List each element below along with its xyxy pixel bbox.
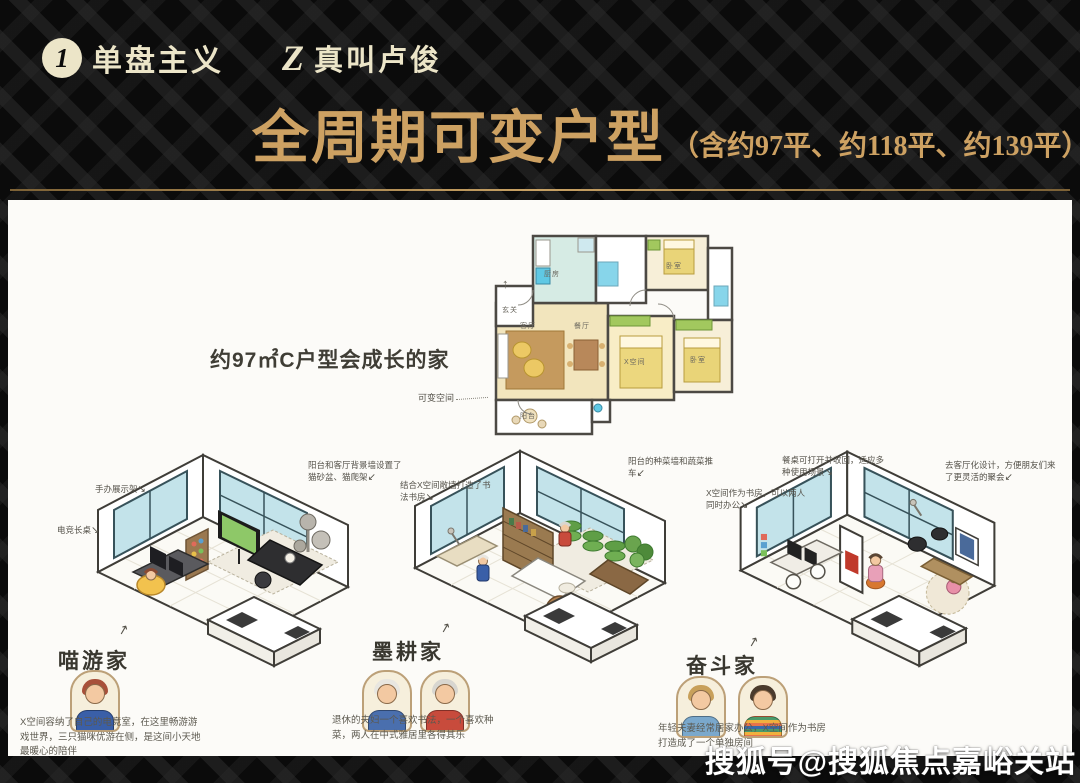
leader-arrow-icon: ↙ (637, 468, 645, 479)
leader-arrow-icon: ↘ (138, 484, 146, 495)
leader-arrow-icon: ↘ (740, 500, 748, 511)
kitchen-counter (536, 240, 550, 266)
bed-top-pillow (664, 240, 694, 249)
bathroom-fixture-2 (714, 286, 728, 306)
lujun-logo-icon: Z (282, 37, 304, 79)
bed-x-pillow (620, 336, 662, 348)
scene-name-ink-garden: 墨耕家 (372, 636, 444, 666)
utility-fixture (594, 404, 602, 412)
danpan-logo-icon: 1 (42, 38, 82, 78)
armchair-2 (524, 359, 544, 377)
armchair (513, 342, 531, 358)
label-bedroom-right: 卧室 (690, 355, 706, 364)
floorplan-caption: 约97㎡C户型会成长的家 (210, 344, 450, 374)
label-kitchen: 厨房 (544, 269, 560, 278)
leader-arrow-icon: ↘ (426, 492, 434, 503)
annotation-figure-shelf: 手办展示架↘ (95, 483, 165, 497)
annotation-folding-table: 餐桌可打开并收回，适应多种使用场景↘ (782, 455, 884, 480)
page-title: 全周期可变户型 (252, 108, 665, 171)
partition-wall (840, 526, 862, 593)
elderly-woman-figure (559, 523, 571, 546)
danpan-logo-text: 单盘主义 (92, 36, 224, 80)
label-balcony: 阳台 (520, 411, 536, 420)
leader-arrow-icon: ↙ (1005, 472, 1013, 483)
wardrobe-x (610, 316, 650, 326)
label-entry: 玄关 (502, 305, 518, 314)
room-balcony (496, 400, 592, 434)
brand-logos: 1 单盘主义 Z 真叫卢俊 (42, 36, 442, 80)
dining-table-plan (574, 340, 598, 370)
elderly-man-figure (477, 556, 489, 581)
annotation-esports-desk: 电竞长桌↘ (57, 524, 117, 538)
scene-description-ink-garden: 退休的夫妇一个喜欢书法，一个喜欢种菜，两人在中式雅居里各得其乐 (332, 714, 504, 743)
label-living: 客厅 (520, 321, 536, 330)
dining-chair (599, 343, 605, 349)
fridge (578, 238, 594, 252)
page-title-row: 全周期可变户型 （含约97平、约118平、约139平） (252, 108, 1064, 171)
round-table (255, 572, 271, 588)
balcony-chair (512, 416, 520, 424)
dining-chair (599, 361, 605, 367)
poster: 1 单盘主义 Z 真叫卢俊 全周期可变户型 （含约97平、约118平、约139平… (0, 0, 1080, 783)
dining-chair (567, 361, 573, 367)
leader-arrow-icon: ↘ (91, 525, 99, 536)
leader-arrow-icon: ↘ (825, 467, 833, 478)
watermark: 搜狐号@搜狐焦点嘉峪关站 (705, 737, 1076, 781)
label-dining: 餐厅 (574, 321, 590, 330)
dining-chair (567, 343, 573, 349)
room-entry (496, 286, 533, 326)
annotation-calligraphy-study: 结合X空间敞墙打造了书法书房↘ (400, 480, 492, 505)
balcony-chair (538, 420, 546, 428)
wardrobe-top (648, 240, 660, 250)
lujun-logo-text: 真叫卢俊 (314, 37, 442, 79)
gold-divider (10, 189, 1070, 191)
variable-space-label: 可变空间 (418, 391, 454, 404)
cat-on-sofa (285, 553, 295, 563)
label-bedroom-top: 卧室 (666, 261, 682, 270)
annotation-no-living-room: 去客厅化设计，方便朋友们来了更灵活的聚会↙ (945, 460, 1063, 485)
scene-description-cat-gamer: X空间容纳了自己的电竞室，在这里畅游游戏世界，三只猫咪优游在侧，是这间小天地最暖… (20, 716, 205, 760)
north-arrow-icon: ↑ (502, 276, 509, 291)
bathroom-fixture (598, 262, 618, 286)
label-x-space: X空间 (624, 357, 646, 366)
annotation-x-study: X空间作为书房，可以两人同时办公↘ (706, 488, 806, 513)
bed-right-pillow (684, 338, 720, 348)
floorplan: 玄关 厨房 卧室 客厅 餐厅 X空间 卧室 阳台 ↑ (478, 228, 740, 442)
page-subtitle: （含约97平、约118平、约139平） (671, 124, 1080, 171)
wardrobe-right (676, 320, 712, 330)
room-bath-right (708, 248, 732, 320)
sofa-plan (498, 334, 508, 378)
